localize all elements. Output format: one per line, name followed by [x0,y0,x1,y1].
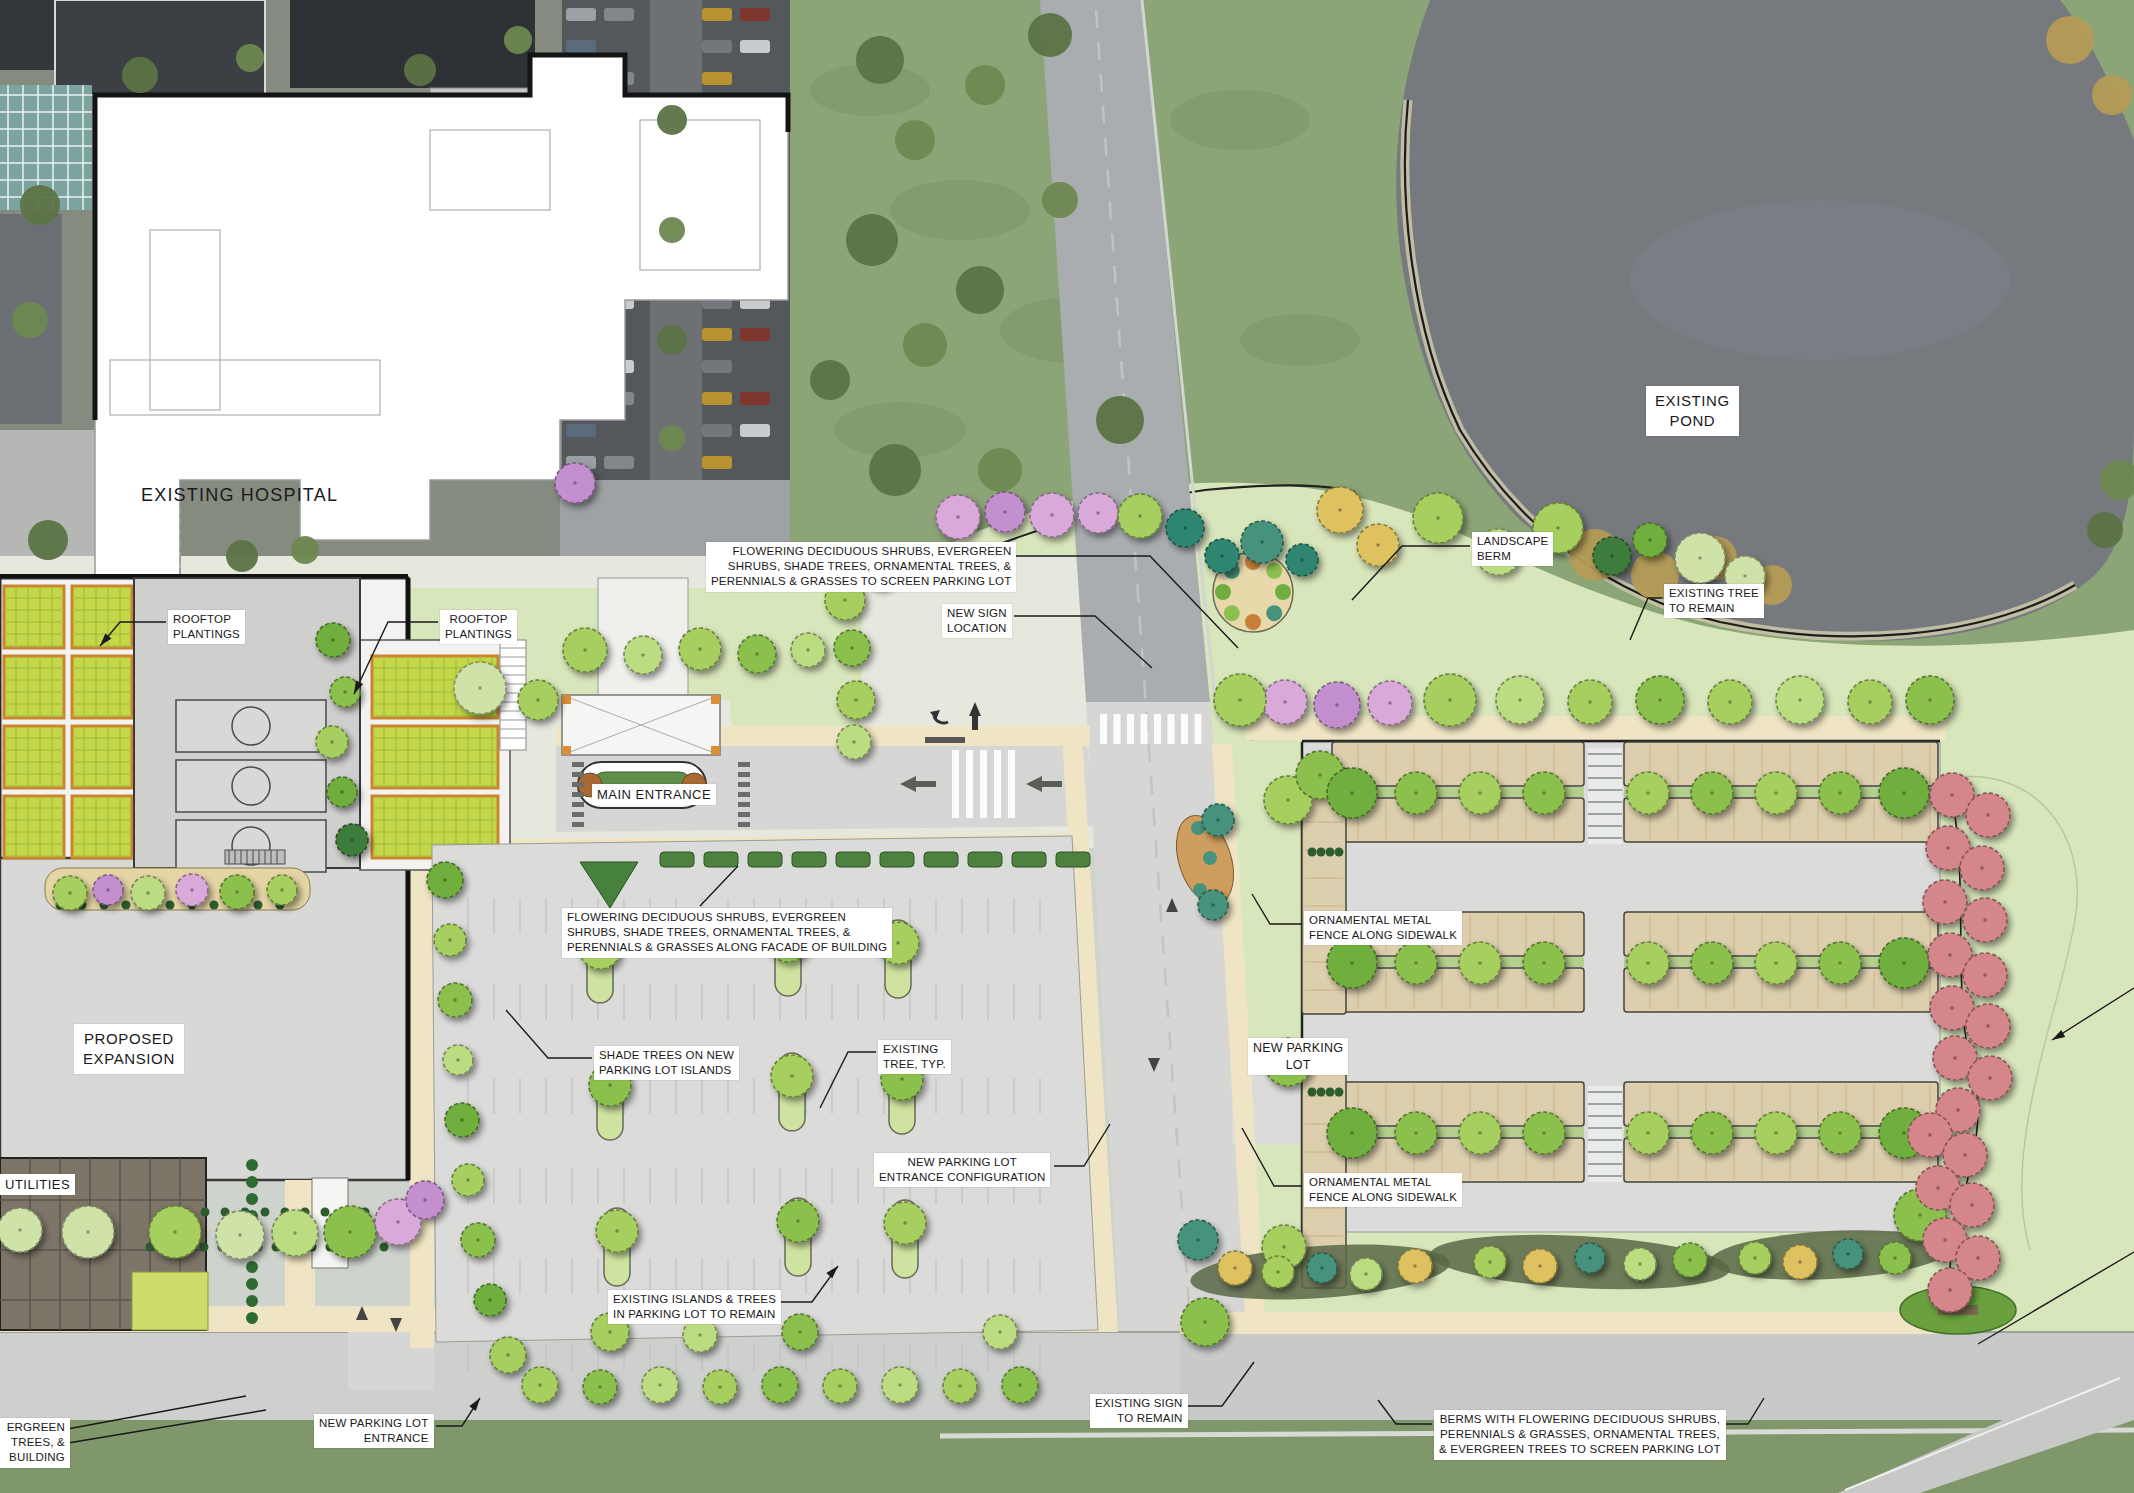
label-landscape-berm: LANDSCAPE BERM [1472,532,1553,566]
label-existing-pond: EXISTING POND [1646,386,1739,436]
site-plan-canvas: EXISTING HOSPITAL EXISTING POND ROOFTOP … [0,0,2134,1493]
label-rooftop-plantings-left: ROOFTOP PLANTINGS [168,610,245,644]
label-ornamental-fence-south: ORNAMENTAL METAL FENCE ALONG SIDEWALK [1304,1173,1462,1207]
label-existing-hospital: EXISTING HOSPITAL [136,482,343,510]
label-facade-planting-note: FLOWERING DECIDUOUS SHRUBS, EVERGREEN SH… [562,908,892,958]
label-new-parking-lot-entrance: NEW PARKING LOT ENTRANCE [314,1414,434,1448]
label-rooftop-plantings-right: ROOFTOP PLANTINGS [440,610,517,644]
label-utilities: UTILITIES [0,1174,75,1195]
label-screen-parking-note: FLOWERING DECIDUOUS SHRUBS, EVERGREEN SH… [706,542,1016,592]
label-main-entrance: MAIN ENTRANCE [592,784,716,805]
site-plan-graphic [0,0,2134,1493]
label-edge-note-fragment: ERGREEN TREES, & BUILDING [0,1418,70,1468]
label-ornamental-fence-north: ORNAMENTAL METAL FENCE ALONG SIDEWALK [1304,911,1462,945]
label-new-sign-location: NEW SIGN LOCATION [942,604,1012,638]
label-existing-tree-to-remain: EXISTING TREE TO REMAIN [1664,584,1764,618]
label-entrance-configuration-note: NEW PARKING LOT ENTRANCE CONFIGURATION [874,1153,1050,1187]
label-berms-note: BERMS WITH FLOWERING DECIDUOUS SHRUBS, P… [1434,1410,1726,1460]
label-existing-islands-note: EXISTING ISLANDS & TREES IN PARKING LOT … [608,1290,781,1324]
label-existing-sign-to-remain: EXISTING SIGN TO REMAIN [1090,1394,1188,1428]
label-new-parking-lot: NEW PARKING LOT [1248,1038,1348,1075]
label-shade-trees-note: SHADE TREES ON NEW PARKING LOT ISLANDS [594,1046,739,1080]
label-existing-tree-typ: EXISTING TREE, TYP. [878,1040,951,1074]
label-proposed-expansion: PROPOSED EXPANSION [74,1024,184,1074]
